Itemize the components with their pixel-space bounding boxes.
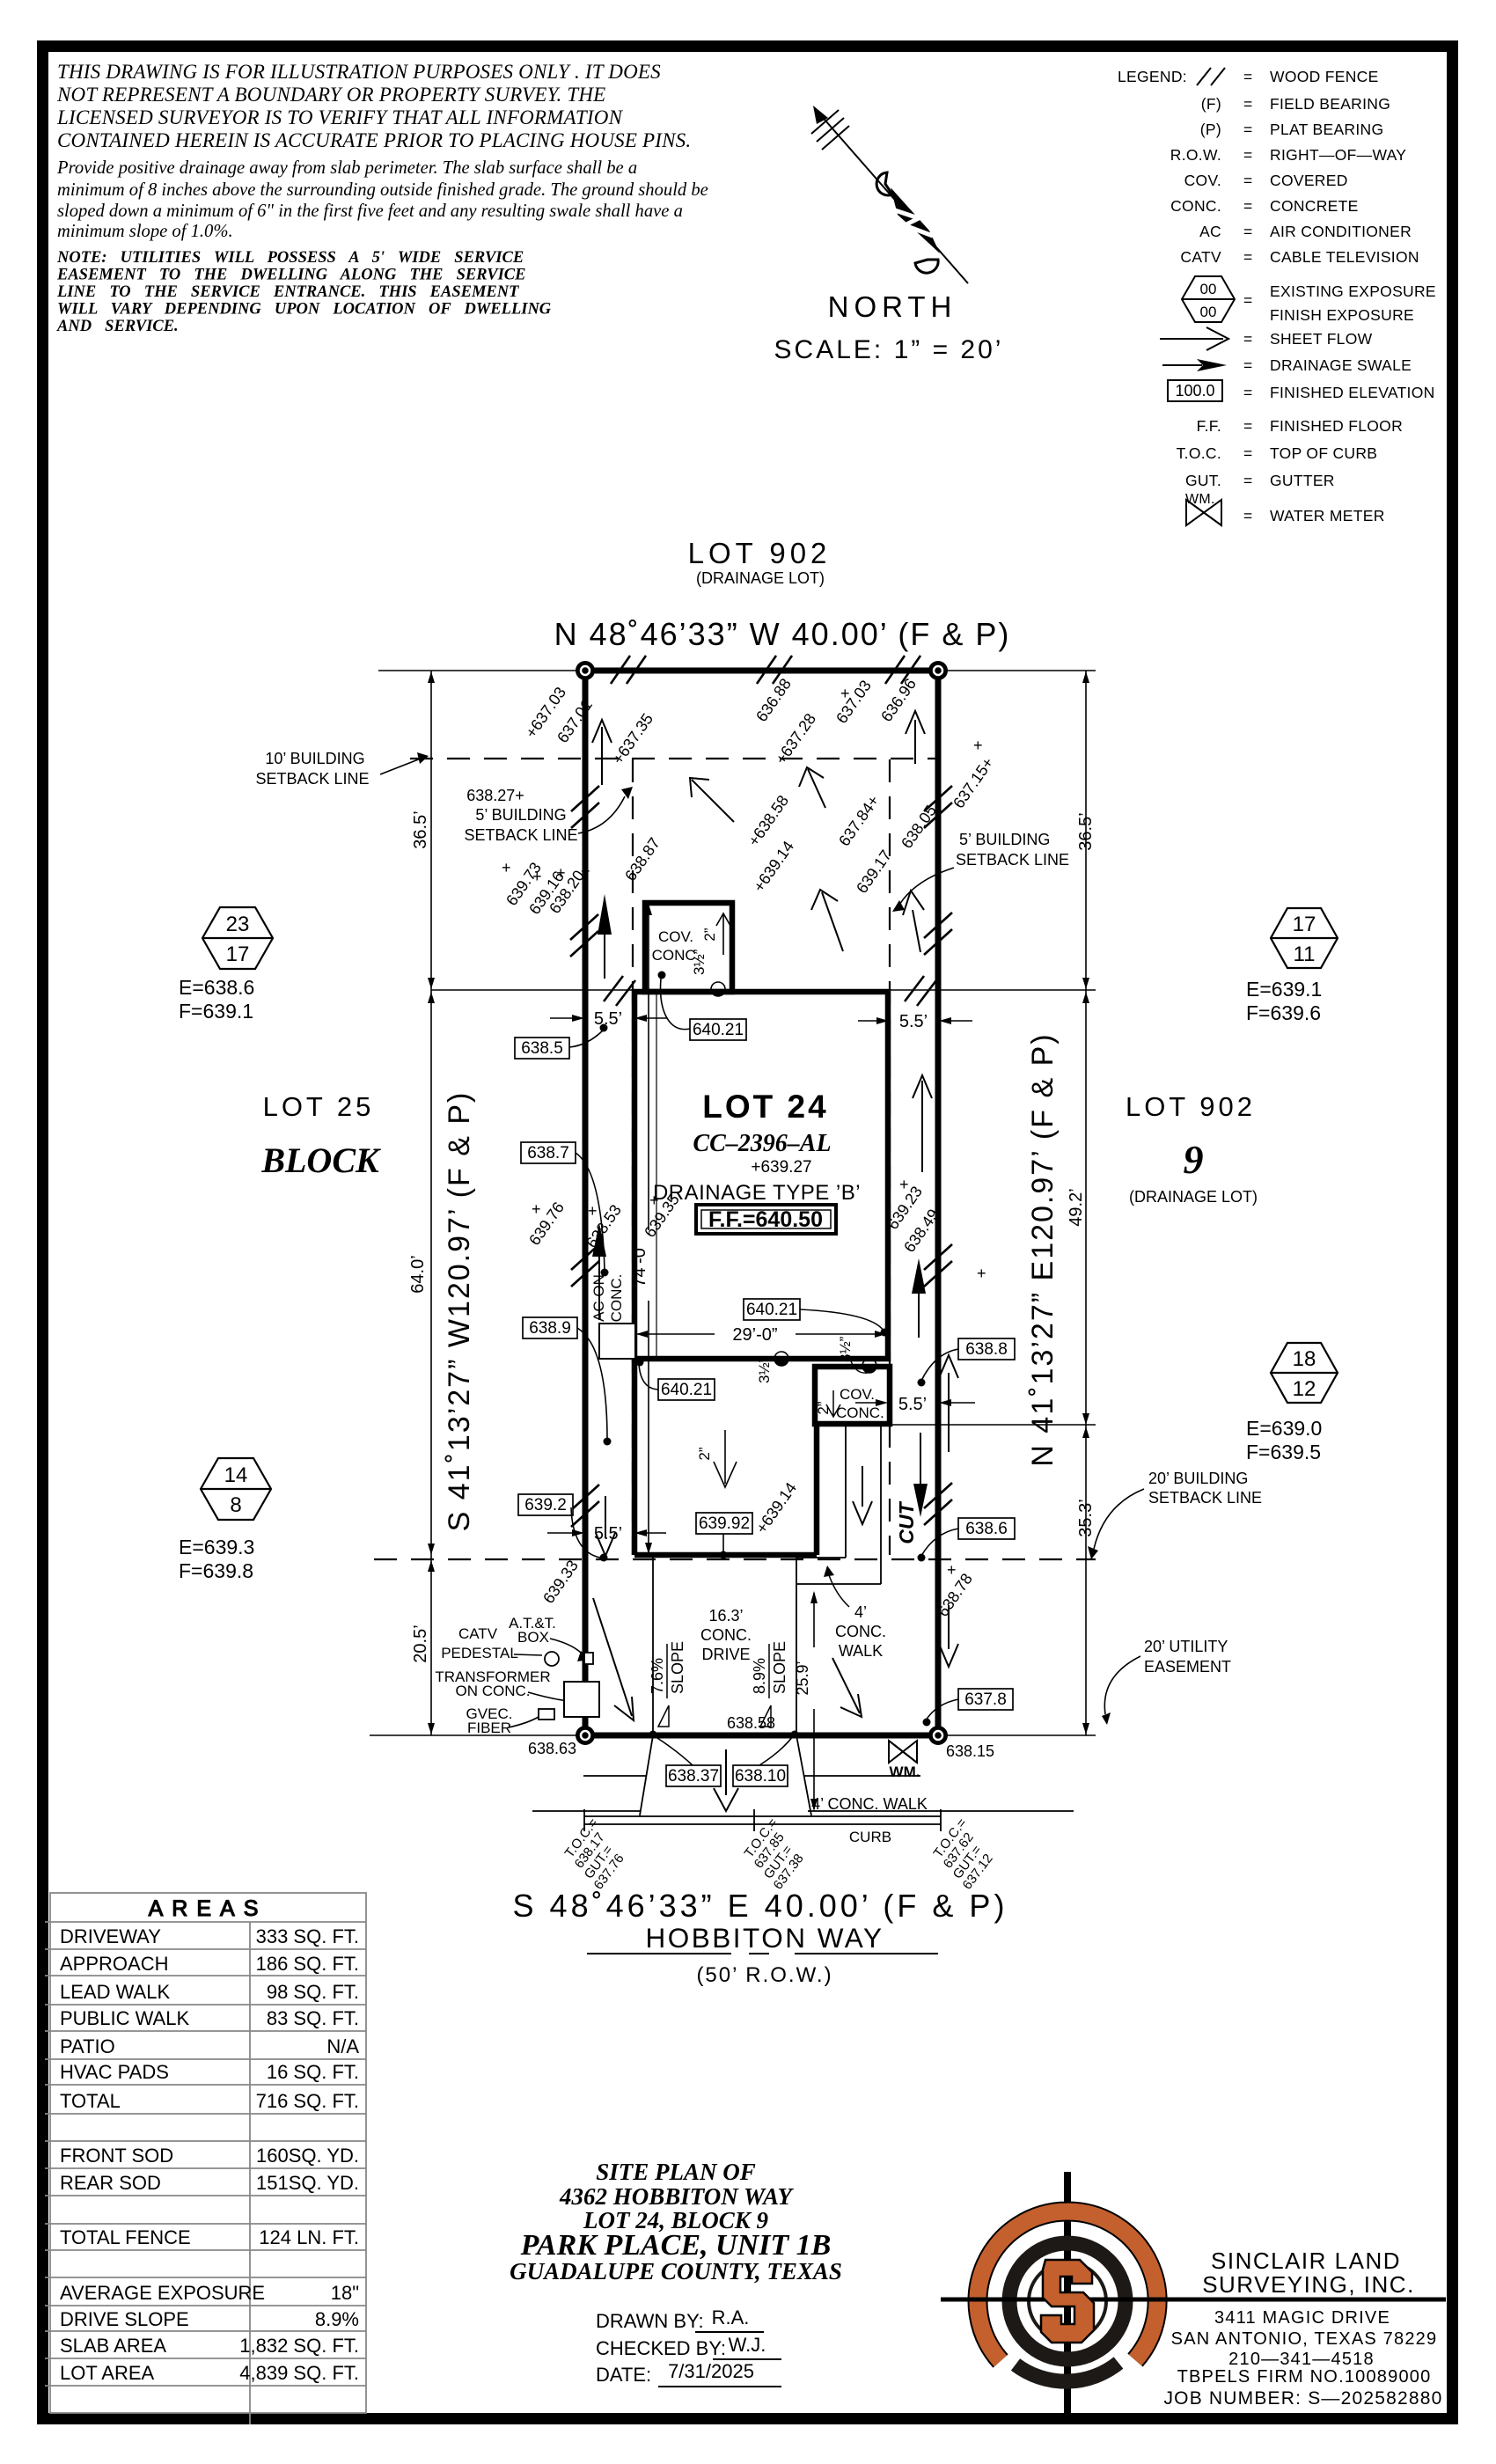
svg-text:5’ BUILDING: 5’ BUILDING bbox=[959, 831, 1050, 848]
svg-text:LICENSED SURVEYOR IS TO VERIFY: LICENSED SURVEYOR IS TO VERIFY THAT ALL … bbox=[56, 106, 624, 128]
svg-text:00: 00 bbox=[1200, 304, 1217, 320]
svg-text:8.9%: 8.9% bbox=[315, 2308, 359, 2330]
svg-text:LEGEND:: LEGEND: bbox=[1118, 68, 1187, 85]
svg-text:=: = bbox=[1243, 291, 1253, 309]
svg-text:4’: 4’ bbox=[854, 1603, 867, 1621]
svg-text:+: + bbox=[588, 1202, 598, 1220]
svg-text:COV.: COV. bbox=[658, 928, 693, 945]
svg-text:FINISHED ELEVATION: FINISHED ELEVATION bbox=[1270, 384, 1435, 401]
svg-text:R.A.: R.A. bbox=[712, 2306, 750, 2328]
svg-text:=: = bbox=[1243, 507, 1253, 524]
svg-text:RIGHT—OF—WAY: RIGHT—OF—WAY bbox=[1270, 146, 1406, 164]
svg-text:1,832 SQ. FT.: 1,832 SQ. FT. bbox=[239, 2335, 359, 2357]
svg-text:DRAWN BY:: DRAWN BY: bbox=[596, 2310, 704, 2332]
svg-text:W.J.: W.J. bbox=[729, 2334, 766, 2356]
svg-text:sloped down a minimum of 6" in: sloped down a minimum of 6" in the first… bbox=[57, 202, 683, 221]
svg-text:639.92: 639.92 bbox=[699, 1514, 750, 1533]
svg-text:333 SQ. FT.: 333 SQ. FT. bbox=[256, 1925, 359, 1947]
svg-text:NOT REPRESENT A BOUNDARY OR PR: NOT REPRESENT A BOUNDARY OR PROPERTY SUR… bbox=[56, 84, 605, 106]
svg-text:3½”: 3½” bbox=[691, 949, 708, 975]
svg-text:74’-0”: 74’-0” bbox=[630, 1242, 649, 1287]
svg-text:=: = bbox=[1243, 172, 1253, 189]
svg-text:CC–2396–AL: CC–2396–AL bbox=[693, 1130, 831, 1157]
svg-text:640.21: 640.21 bbox=[661, 1381, 712, 1399]
svg-text:PUBLIC WALK: PUBLIC WALK bbox=[60, 2007, 189, 2029]
svg-text:E=639.0: E=639.0 bbox=[1246, 1417, 1322, 1440]
svg-text:E=638.6: E=638.6 bbox=[179, 976, 254, 999]
svg-text:LOT 25: LOT 25 bbox=[263, 1091, 375, 1122]
svg-text:SLOPE: SLOPE bbox=[669, 1641, 686, 1694]
svg-text:LEAD WALK: LEAD WALK bbox=[60, 1981, 170, 2003]
svg-text:CONC.: CONC. bbox=[836, 1404, 884, 1421]
svg-text:minimum slope of 1.0%.: minimum slope of 1.0%. bbox=[57, 222, 233, 241]
svg-text:GUT.: GUT. bbox=[1185, 472, 1221, 489]
svg-text:5.5’: 5.5’ bbox=[899, 1012, 928, 1031]
svg-text:=: = bbox=[1243, 121, 1253, 138]
svg-text:+: + bbox=[977, 1265, 986, 1282]
svg-text:AND SERVICE.: AND SERVICE. bbox=[56, 318, 179, 335]
svg-text:LOT 902: LOT 902 bbox=[688, 537, 832, 569]
svg-text:64.0’: 64.0’ bbox=[408, 1255, 428, 1293]
svg-text:S 48˚46’33” E 40.00’ (F &: S 48˚46’33” E 40.00’ (F & P) bbox=[513, 1888, 1008, 1924]
svg-text:17: 17 bbox=[1293, 913, 1316, 936]
svg-text:CATV: CATV bbox=[1180, 248, 1221, 266]
svg-text:637.8: 637.8 bbox=[964, 1690, 1007, 1709]
svg-text:7.6%: 7.6% bbox=[649, 1658, 666, 1694]
svg-text:CUT: CUT bbox=[895, 1500, 918, 1544]
svg-text:CONC.: CONC. bbox=[608, 1274, 625, 1323]
svg-text:25.9’: 25.9’ bbox=[794, 1661, 811, 1695]
svg-text:(50’ R.O.W.): (50’ R.O.W.) bbox=[696, 1963, 832, 1987]
svg-text:716 SQ. FT.: 716 SQ. FT. bbox=[256, 2090, 359, 2112]
svg-text:+: + bbox=[556, 864, 566, 882]
svg-text:THIS DRAWING IS FOR ILLUSTRATI: THIS DRAWING IS FOR ILLUSTRATION PURPOSE… bbox=[57, 61, 661, 83]
svg-text:638.9: 638.9 bbox=[529, 1319, 571, 1338]
svg-text:LOT AREA: LOT AREA bbox=[60, 2362, 155, 2384]
svg-text:=: = bbox=[1243, 444, 1253, 462]
svg-text:=: = bbox=[1243, 197, 1253, 215]
svg-text:WOOD FENCE: WOOD FENCE bbox=[1270, 68, 1379, 85]
svg-text:+: + bbox=[899, 1176, 909, 1193]
svg-text:638.15: 638.15 bbox=[946, 1742, 994, 1760]
svg-text:8.9%: 8.9% bbox=[751, 1658, 768, 1694]
svg-text:TBPELS FIRM NO.10089000: TBPELS FIRM NO.10089000 bbox=[1177, 2367, 1432, 2387]
svg-text:N/A: N/A bbox=[326, 2035, 359, 2057]
svg-text:638.58: 638.58 bbox=[727, 1714, 775, 1732]
svg-text:+: + bbox=[840, 685, 850, 702]
svg-text:SLAB AREA: SLAB AREA bbox=[60, 2335, 166, 2357]
svg-text:638.8: 638.8 bbox=[965, 1340, 1008, 1359]
svg-text:WATER METER: WATER METER bbox=[1270, 507, 1385, 524]
svg-text:AREAS: AREAS bbox=[149, 1896, 268, 1921]
svg-text:SETBACK LINE: SETBACK LINE bbox=[255, 770, 369, 788]
svg-text:CABLE TELEVISION: CABLE TELEVISION bbox=[1270, 248, 1419, 266]
svg-text:F=639.8: F=639.8 bbox=[179, 1559, 253, 1582]
svg-text:16 SQ. FT.: 16 SQ. FT. bbox=[267, 2061, 359, 2083]
svg-text:TOTAL: TOTAL bbox=[60, 2090, 121, 2112]
svg-text:NOTE: UTILITIES WILL POSSESS A: NOTE: UTILITIES WILL POSSESS A 5' WIDE S… bbox=[56, 249, 524, 267]
svg-text:TOP OF CURB: TOP OF CURB bbox=[1270, 444, 1377, 462]
svg-text:GUADALUPE COUNTY, TEXAS: GUADALUPE COUNTY, TEXAS bbox=[510, 2258, 842, 2284]
svg-text:+639.27: +639.27 bbox=[751, 1158, 811, 1177]
svg-text:3½”: 3½” bbox=[756, 1357, 773, 1383]
svg-text:29’-0”: 29’-0” bbox=[732, 1325, 777, 1345]
svg-text:(DRAINAGE LOT): (DRAINAGE LOT) bbox=[696, 569, 825, 587]
svg-text:5.5’: 5.5’ bbox=[898, 1395, 927, 1414]
svg-text:DRAINAGE TYPE ’B’: DRAINAGE TYPE ’B’ bbox=[653, 1181, 861, 1205]
svg-text:23: 23 bbox=[226, 913, 250, 936]
svg-text:CATV: CATV bbox=[458, 1625, 498, 1642]
svg-text:=: = bbox=[1243, 95, 1253, 113]
svg-text:COV.: COV. bbox=[1184, 172, 1221, 189]
svg-text:83 SQ. FT.: 83 SQ. FT. bbox=[267, 2007, 359, 2029]
svg-text:FINISH EXPOSURE: FINISH EXPOSURE bbox=[1270, 306, 1414, 324]
svg-text:35.3’: 35.3’ bbox=[1076, 1499, 1096, 1536]
svg-text:17: 17 bbox=[226, 942, 250, 966]
svg-text:LOT 24: LOT 24 bbox=[702, 1089, 828, 1125]
svg-text:R.O.W.: R.O.W. bbox=[1170, 146, 1221, 164]
svg-text:HVAC PADS: HVAC PADS bbox=[60, 2061, 169, 2083]
svg-text:=: = bbox=[1243, 472, 1253, 489]
svg-text:+: + bbox=[581, 862, 590, 880]
svg-text:3411 MAGIC DRIVE: 3411 MAGIC DRIVE bbox=[1214, 2308, 1390, 2328]
svg-text:2”: 2” bbox=[701, 928, 718, 941]
svg-text:AIR CONDITIONER: AIR CONDITIONER bbox=[1270, 223, 1412, 240]
svg-text:N 48˚46’33” W 40.00’ (F &: N 48˚46’33” W 40.00’ (F & P) bbox=[554, 616, 1011, 652]
svg-text:EASEMENT TO THE DWELLING ALONG: EASEMENT TO THE DWELLING ALONG THE SERVI… bbox=[56, 267, 525, 284]
svg-text:49.2’: 49.2’ bbox=[1067, 1188, 1086, 1226]
svg-text:CURB: CURB bbox=[849, 1829, 891, 1845]
svg-text:00: 00 bbox=[1200, 281, 1217, 297]
svg-text:BOX: BOX bbox=[517, 1629, 549, 1646]
svg-text:CHECKED BY:: CHECKED BY: bbox=[596, 2337, 726, 2359]
svg-text:36.5’: 36.5’ bbox=[411, 810, 430, 848]
svg-text:+: + bbox=[532, 1200, 541, 1218]
svg-text:151SQ. YD.: 151SQ. YD. bbox=[256, 2172, 359, 2194]
svg-text:TOTAL FENCE: TOTAL FENCE bbox=[60, 2226, 191, 2248]
svg-text:4362 HOBBITON WAY: 4362 HOBBITON WAY bbox=[559, 2183, 795, 2210]
svg-text:12: 12 bbox=[1293, 1377, 1316, 1401]
svg-text:WM.: WM. bbox=[890, 1764, 920, 1780]
svg-text:FIELD BEARING: FIELD BEARING bbox=[1270, 95, 1390, 113]
svg-text:CONC.: CONC. bbox=[700, 1626, 752, 1644]
svg-text:FRONT SOD: FRONT SOD bbox=[60, 2145, 173, 2167]
svg-text:CONC.: CONC. bbox=[1170, 197, 1221, 215]
svg-text:COV.: COV. bbox=[840, 1386, 875, 1403]
svg-text:FIBER: FIBER bbox=[467, 1720, 511, 1736]
svg-text:4’ CONC. WALK: 4’ CONC. WALK bbox=[811, 1795, 928, 1813]
svg-text:BLOCK: BLOCK bbox=[260, 1140, 381, 1180]
svg-text:18: 18 bbox=[1293, 1347, 1316, 1371]
svg-text:SINCLAIR LAND: SINCLAIR LAND bbox=[1211, 2248, 1401, 2274]
svg-text:PATIO: PATIO bbox=[60, 2035, 115, 2057]
svg-text:N 41˚13’27” E120.97’ (F &: N 41˚13’27” E120.97’ (F & P) bbox=[1026, 1032, 1060, 1466]
svg-text:DRIVE: DRIVE bbox=[701, 1646, 750, 1663]
svg-text:+: + bbox=[532, 868, 542, 885]
svg-text:=: = bbox=[1243, 248, 1253, 266]
svg-text:2”: 2” bbox=[696, 1447, 713, 1460]
svg-text:20.5’: 20.5’ bbox=[411, 1624, 430, 1662]
svg-text:DRIVEWAY: DRIVEWAY bbox=[60, 1925, 161, 1947]
svg-text:DATE:: DATE: bbox=[596, 2364, 651, 2386]
svg-text:=: = bbox=[1243, 356, 1253, 374]
svg-text:REAR SOD: REAR SOD bbox=[60, 2172, 161, 2194]
svg-text:SETBACK LINE: SETBACK LINE bbox=[956, 851, 1069, 869]
svg-text:SETBACK LINE: SETBACK LINE bbox=[464, 826, 577, 844]
svg-text:639.2: 639.2 bbox=[524, 1496, 567, 1514]
svg-text:(F): (F) bbox=[1201, 95, 1221, 113]
svg-text:638.10: 638.10 bbox=[735, 1767, 786, 1786]
svg-text:Provide positive drainage away: Provide positive drainage away from slab… bbox=[56, 158, 637, 178]
svg-text:PLAT BEARING: PLAT BEARING bbox=[1270, 121, 1383, 138]
svg-text:PEDESTAL: PEDESTAL bbox=[441, 1645, 518, 1661]
svg-text:GUTTER: GUTTER bbox=[1270, 472, 1335, 489]
svg-text:F.F.: F.F. bbox=[1197, 417, 1221, 435]
svg-text:5’ BUILDING: 5’ BUILDING bbox=[475, 806, 566, 824]
svg-text:HOBBITON WAY: HOBBITON WAY bbox=[646, 1922, 884, 1954]
svg-text:APPROACH: APPROACH bbox=[60, 1953, 168, 1975]
svg-text:10’ BUILDING: 10’ BUILDING bbox=[265, 750, 364, 767]
svg-text:7/31/2025: 7/31/2025 bbox=[668, 2360, 754, 2382]
svg-text:EASEMENT: EASEMENT bbox=[1144, 1658, 1231, 1676]
svg-text:640.21: 640.21 bbox=[746, 1301, 797, 1319]
svg-text:AC: AC bbox=[1199, 223, 1221, 240]
svg-text:20’ BUILDING: 20’ BUILDING bbox=[1148, 1470, 1248, 1487]
svg-text:18": 18" bbox=[331, 2282, 359, 2304]
svg-text:14: 14 bbox=[224, 1463, 248, 1487]
svg-text:T.O.C.: T.O.C. bbox=[1177, 444, 1221, 462]
svg-text:F=639.5: F=639.5 bbox=[1246, 1441, 1321, 1463]
svg-text:WM.: WM. bbox=[1185, 492, 1215, 507]
svg-text:LOT 902: LOT 902 bbox=[1126, 1091, 1256, 1122]
svg-text:3½”: 3½” bbox=[837, 1336, 854, 1362]
svg-text:PARK PLACE, UNIT 1B: PARK PLACE, UNIT 1B bbox=[520, 2229, 832, 2262]
svg-text:(DRAINAGE LOT): (DRAINAGE LOT) bbox=[1129, 1188, 1258, 1206]
svg-text:CONTAINED HEREIN IS ACCURATE P: CONTAINED HEREIN IS ACCURATE PRIOR TO PL… bbox=[57, 129, 691, 151]
svg-text:=: = bbox=[1243, 223, 1253, 240]
svg-text:WILL VARY DEPENDING UPON LOCAT: WILL VARY DEPENDING UPON LOCATION OF DWE… bbox=[57, 301, 552, 319]
svg-text:+: + bbox=[947, 1561, 957, 1579]
svg-text:E=639.1: E=639.1 bbox=[1246, 978, 1322, 1001]
svg-text:AVERAGE EXPOSURE: AVERAGE EXPOSURE bbox=[60, 2282, 265, 2304]
svg-text:4,839 SQ. FT.: 4,839 SQ. FT. bbox=[239, 2362, 359, 2384]
svg-text:DRAINAGE SWALE: DRAINAGE SWALE bbox=[1270, 356, 1412, 374]
svg-text:FINISHED FLOOR: FINISHED FLOOR bbox=[1270, 417, 1403, 435]
svg-text:8: 8 bbox=[230, 1493, 241, 1517]
svg-text:SETBACK LINE: SETBACK LINE bbox=[1148, 1489, 1262, 1507]
svg-text:COVERED: COVERED bbox=[1270, 172, 1348, 189]
svg-text:SAN ANTONIO, TEXAS 78229: SAN ANTONIO, TEXAS 78229 bbox=[1171, 2329, 1438, 2349]
svg-text:638.27+: 638.27+ bbox=[466, 787, 524, 804]
svg-text:SITE PLAN OF: SITE PLAN OF bbox=[596, 2159, 756, 2185]
svg-text:638.5: 638.5 bbox=[521, 1039, 563, 1058]
svg-text:NORTH: NORTH bbox=[828, 290, 957, 323]
svg-text:CONC.: CONC. bbox=[835, 1623, 886, 1640]
svg-text:SCALE: 1” = 20’: SCALE: 1” = 20’ bbox=[774, 335, 1004, 364]
svg-text:+: + bbox=[502, 859, 511, 876]
svg-text:11: 11 bbox=[1294, 942, 1316, 966]
svg-text:+: + bbox=[649, 1192, 659, 1209]
svg-text:124 LN. FT.: 124 LN. FT. bbox=[259, 2226, 359, 2248]
svg-text:=: = bbox=[1243, 68, 1253, 85]
svg-text:2”: 2” bbox=[815, 1401, 832, 1414]
svg-text:638.37: 638.37 bbox=[668, 1767, 719, 1786]
svg-text:JOB NUMBER: S—202582880: JOB NUMBER: S—202582880 bbox=[1163, 2388, 1442, 2409]
svg-text:638.63: 638.63 bbox=[528, 1740, 576, 1757]
svg-text:=: = bbox=[1243, 146, 1253, 164]
svg-text:638.6: 638.6 bbox=[965, 1520, 1008, 1538]
svg-text:16.3’: 16.3’ bbox=[708, 1607, 743, 1624]
svg-text:210—341—4518: 210—341—4518 bbox=[1228, 2350, 1375, 2369]
svg-text:SURVEYING, INC.: SURVEYING, INC. bbox=[1202, 2271, 1415, 2298]
svg-text:638.7: 638.7 bbox=[527, 1144, 569, 1162]
svg-text:SLOPE: SLOPE bbox=[771, 1641, 788, 1694]
svg-text:F=639.6: F=639.6 bbox=[1246, 1001, 1321, 1024]
svg-text:(P): (P) bbox=[1200, 121, 1221, 138]
svg-text:100.0: 100.0 bbox=[1175, 382, 1214, 400]
svg-text:LINE TO THE SERVICE ENTRANCE.: LINE TO THE SERVICE ENTRANCE. THIS EASEM… bbox=[56, 283, 519, 301]
svg-text:186 SQ. FT.: 186 SQ. FT. bbox=[256, 1953, 359, 1975]
svg-text:WALK: WALK bbox=[839, 1642, 883, 1660]
svg-text:640.21: 640.21 bbox=[693, 1021, 744, 1039]
svg-text:9: 9 bbox=[1184, 1137, 1204, 1182]
svg-text:S 41˚13’27” W120.97’ (F &: S 41˚13’27” W120.97’ (F & P) bbox=[443, 1091, 476, 1532]
svg-text:20’ UTILITY: 20’ UTILITY bbox=[1144, 1638, 1228, 1655]
svg-text:5.5’: 5.5’ bbox=[594, 1009, 622, 1029]
svg-text:=: = bbox=[1243, 417, 1253, 435]
svg-text:minimum of 8 inches above the: minimum of 8 inches above the surroundin… bbox=[57, 180, 708, 200]
svg-text:ON CONC.: ON CONC. bbox=[456, 1683, 531, 1699]
svg-text:=: = bbox=[1243, 330, 1253, 348]
svg-text:E=639.3: E=639.3 bbox=[179, 1536, 254, 1558]
svg-text:160SQ. YD.: 160SQ. YD. bbox=[256, 2145, 359, 2167]
svg-text:=: = bbox=[1243, 384, 1253, 401]
svg-text:+: + bbox=[973, 737, 983, 754]
svg-text:36.5’: 36.5’ bbox=[1076, 812, 1096, 850]
svg-text:98 SQ. FT.: 98 SQ. FT. bbox=[267, 1981, 359, 2003]
svg-text:CONCRETE: CONCRETE bbox=[1270, 197, 1359, 215]
svg-text:SHEET FLOW: SHEET FLOW bbox=[1270, 330, 1373, 348]
svg-text:DRIVE SLOPE: DRIVE SLOPE bbox=[60, 2308, 189, 2330]
svg-text:EXISTING EXPOSURE: EXISTING EXPOSURE bbox=[1270, 282, 1436, 300]
svg-text:F=639.1: F=639.1 bbox=[179, 1000, 253, 1023]
svg-text:F.F.=640.50: F.F.=640.50 bbox=[708, 1207, 823, 1232]
